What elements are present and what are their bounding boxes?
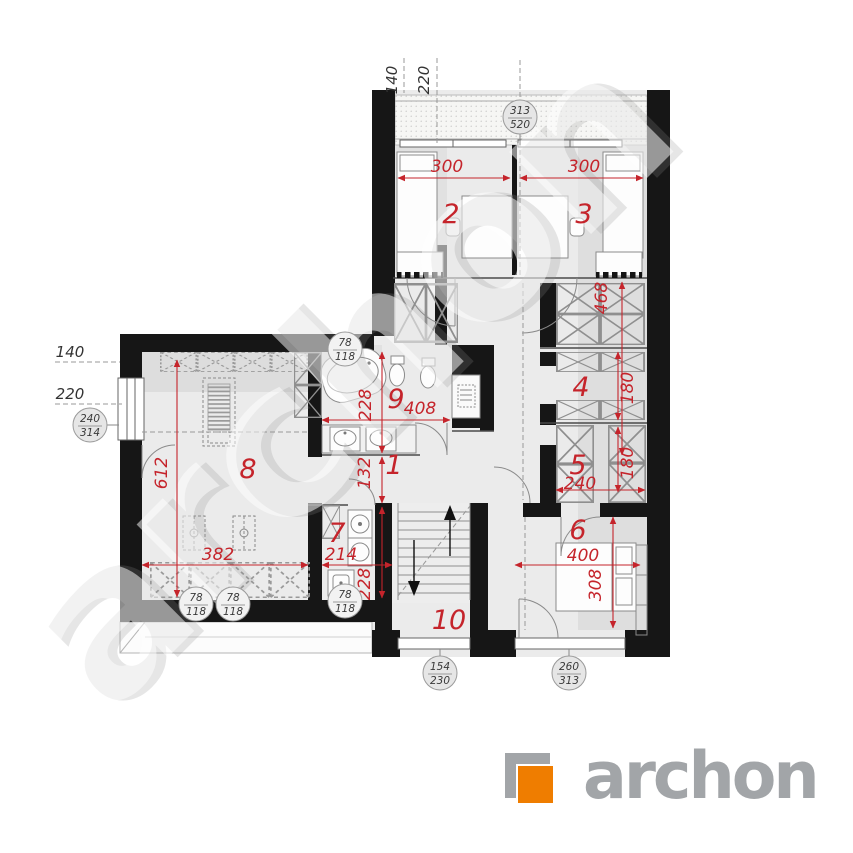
- floor-plan-drawing: archon archon 300 300 468 180 240 180 40…: [0, 0, 853, 853]
- svg-text:300: 300: [568, 157, 600, 177]
- svg-text:313: 313: [559, 675, 579, 687]
- svg-text:118: 118: [186, 606, 206, 618]
- svg-text:78: 78: [189, 592, 203, 604]
- svg-text:78: 78: [338, 589, 352, 601]
- svg-text:468: 468: [592, 282, 612, 315]
- svg-text:10: 10: [432, 605, 466, 636]
- svg-text:3: 3: [575, 199, 592, 230]
- svg-text:6: 6: [569, 515, 586, 546]
- window-tag-240-314: 240 314: [73, 408, 107, 442]
- archon-logo-icon: [503, 750, 573, 820]
- svg-text:2: 2: [442, 199, 459, 230]
- svg-text:9: 9: [387, 384, 404, 415]
- svg-text:118: 118: [335, 351, 355, 363]
- window-tag-78-118-b: 78 118: [179, 587, 213, 621]
- svg-text:118: 118: [223, 606, 243, 618]
- svg-text:382: 382: [202, 545, 234, 565]
- staircase: [392, 503, 470, 603]
- svg-text:8: 8: [239, 454, 256, 485]
- svg-text:220: 220: [56, 385, 85, 403]
- svg-text:140: 140: [383, 66, 401, 95]
- floor-plan-page: archon archon 300 300 468 180 240 180 40…: [0, 0, 853, 853]
- svg-text:240: 240: [80, 413, 100, 425]
- archon-logo-text: archon: [583, 744, 817, 809]
- svg-text:132: 132: [355, 457, 375, 489]
- svg-text:7: 7: [328, 518, 345, 549]
- svg-text:313: 313: [510, 105, 530, 117]
- svg-text:308: 308: [586, 569, 606, 602]
- svg-text:408: 408: [404, 399, 437, 419]
- svg-text:4: 4: [572, 372, 589, 403]
- svg-text:300: 300: [431, 157, 463, 177]
- svg-text:228: 228: [356, 389, 376, 422]
- svg-text:520: 520: [510, 119, 530, 131]
- svg-text:78: 78: [226, 592, 240, 604]
- window-tag-78-118-c: 78 118: [216, 587, 250, 621]
- svg-text:1: 1: [385, 450, 402, 481]
- svg-text:400: 400: [567, 546, 599, 566]
- svg-text:180: 180: [618, 447, 638, 479]
- window-tag-78-118-d: 78 118: [328, 584, 362, 618]
- svg-text:78: 78: [338, 337, 352, 349]
- svg-text:612: 612: [152, 457, 172, 489]
- svg-text:5: 5: [569, 450, 586, 481]
- svg-text:230: 230: [430, 675, 450, 687]
- window-tag-78-118-a: 78 118: [328, 332, 362, 366]
- svg-text:260: 260: [559, 661, 579, 673]
- svg-text:118: 118: [335, 603, 355, 615]
- svg-text:154: 154: [430, 661, 450, 673]
- svg-text:140: 140: [56, 343, 85, 361]
- svg-text:220: 220: [415, 66, 433, 95]
- svg-text:314: 314: [80, 427, 100, 439]
- svg-text:180: 180: [618, 372, 638, 404]
